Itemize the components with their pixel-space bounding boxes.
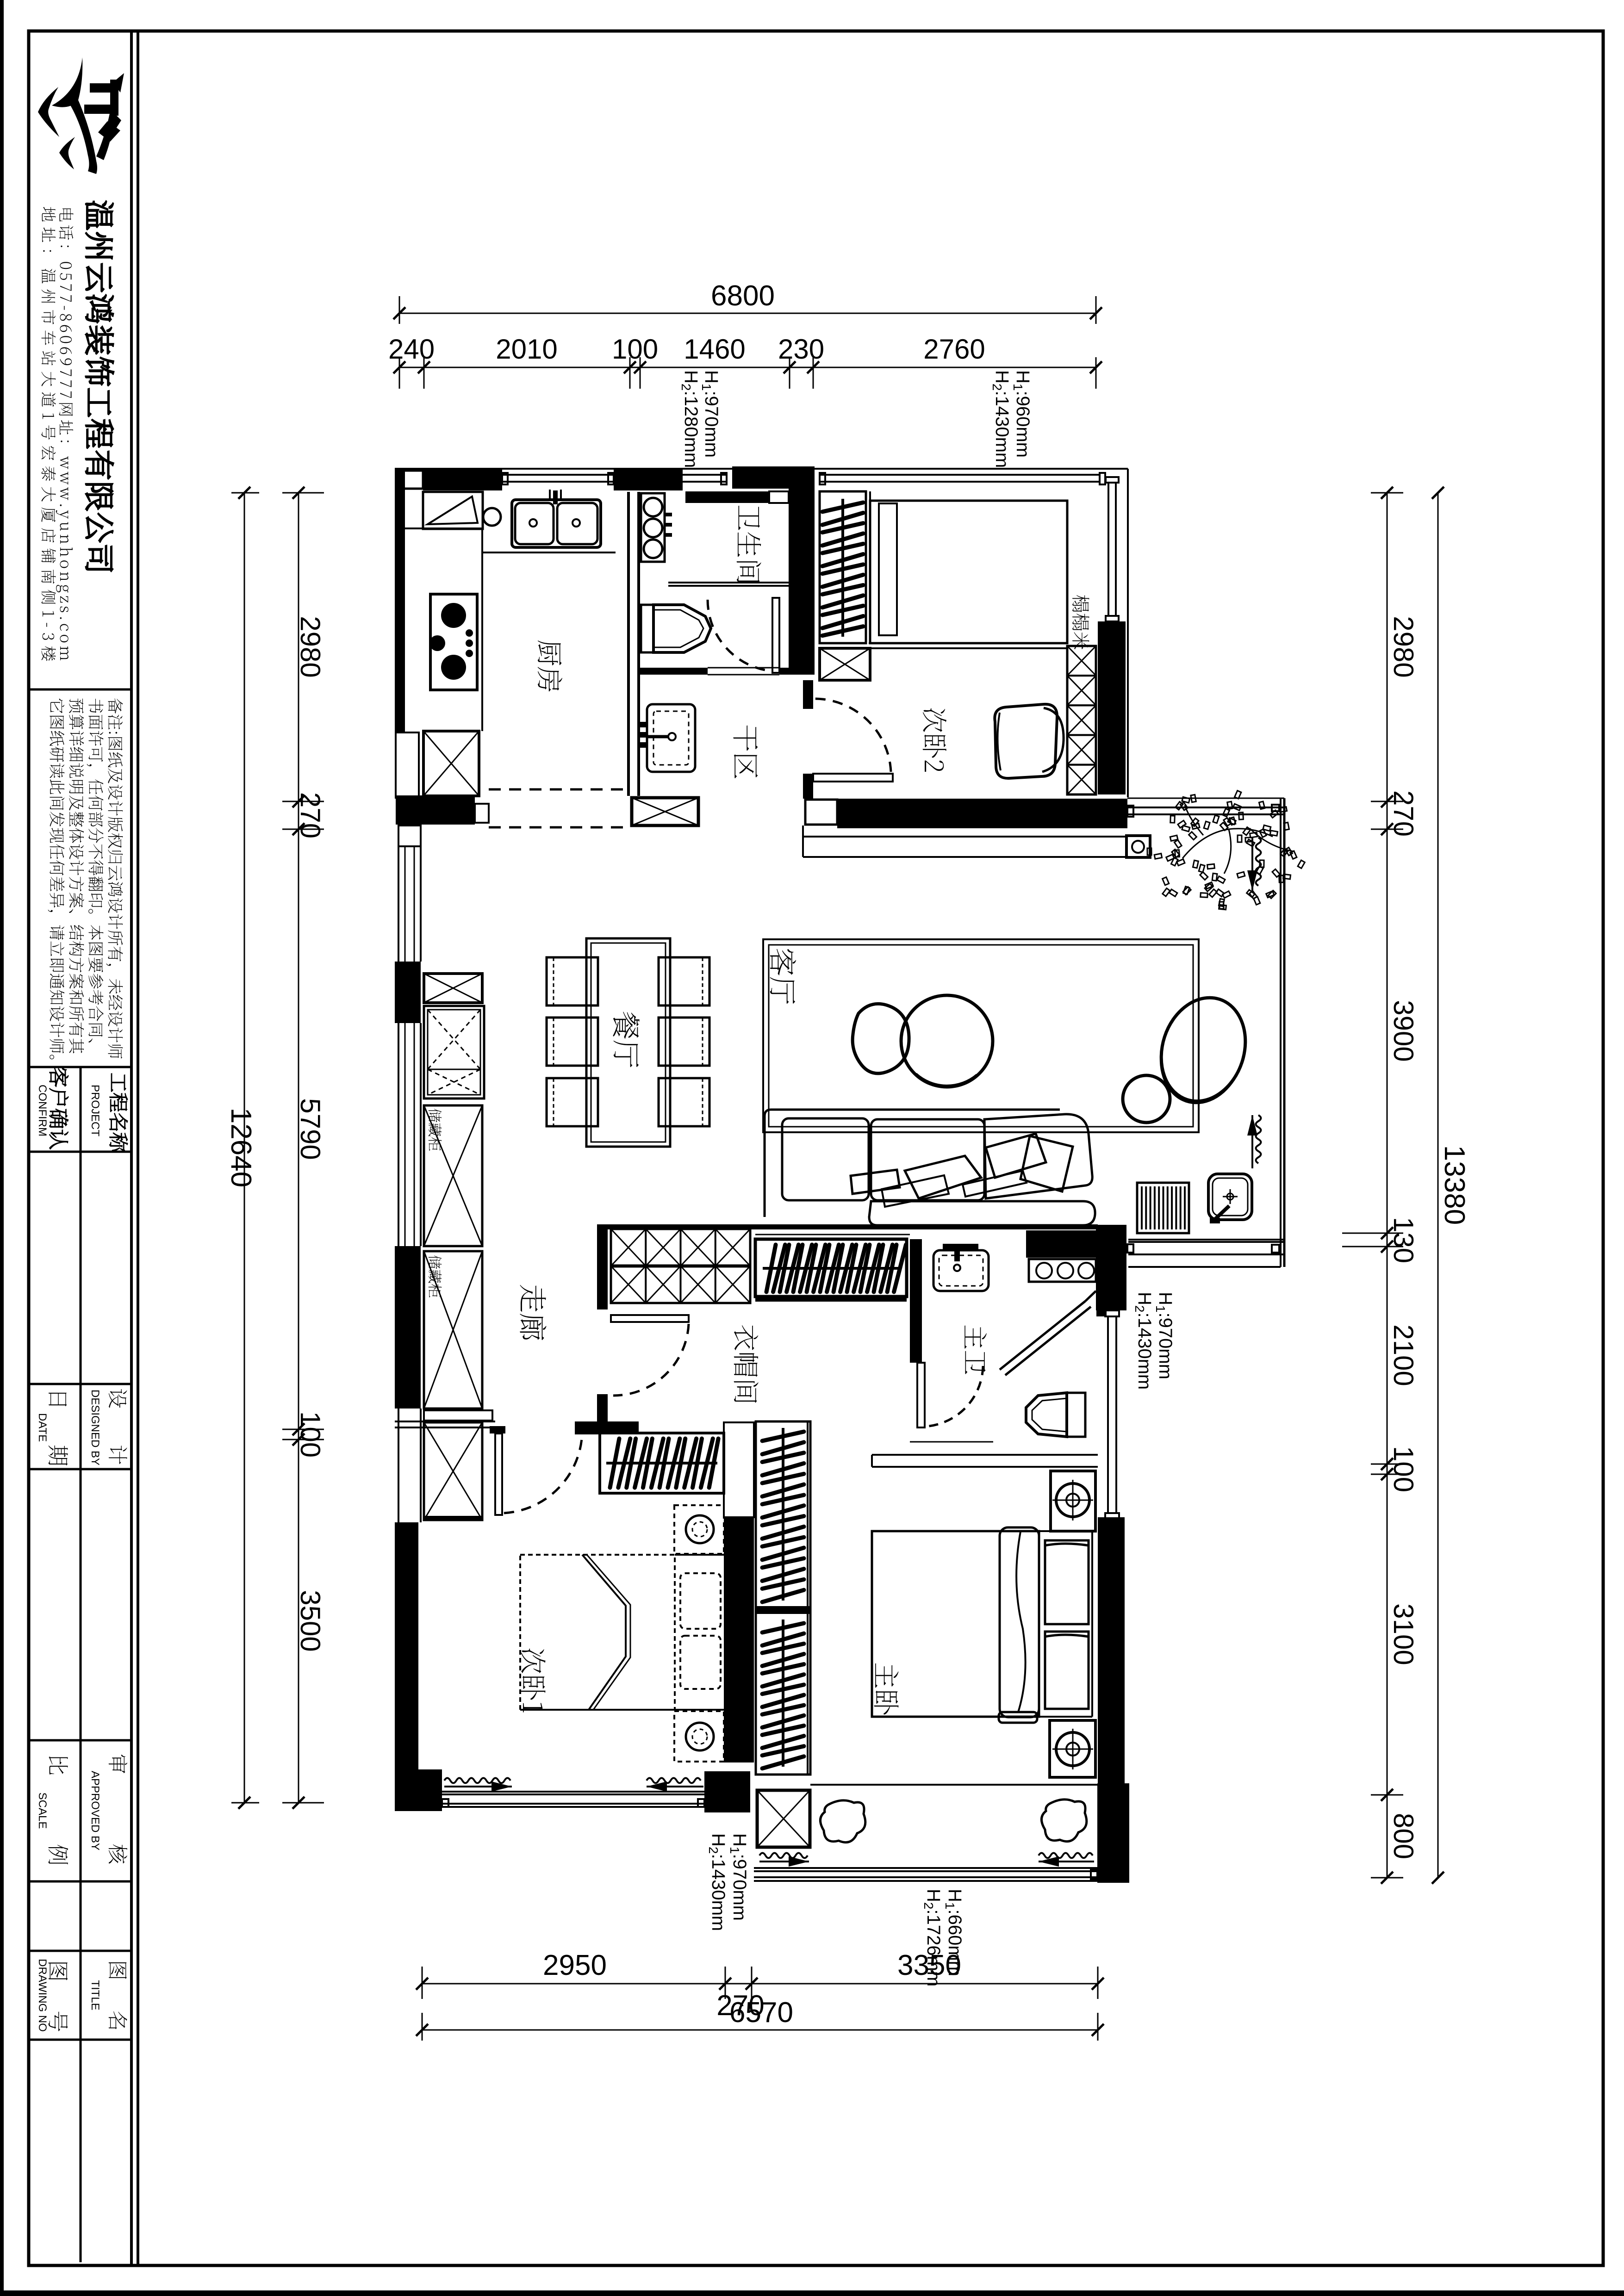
svg-text:CONFIRM: CONFIRM: [36, 1085, 49, 1136]
svg-text:TITLE: TITLE: [89, 1980, 101, 2010]
svg-text:100: 100: [1388, 1446, 1419, 1492]
svg-text:800: 800: [1388, 1813, 1419, 1859]
svg-text:130: 130: [1388, 1217, 1419, 1263]
svg-text:6800: 6800: [711, 280, 775, 312]
svg-text:13380: 13380: [1438, 1145, 1470, 1225]
svg-text:H1:660mm: H1:660mm: [943, 1889, 965, 1976]
svg-text:100: 100: [295, 1411, 326, 1458]
svg-text:270: 270: [1388, 790, 1419, 837]
svg-text:2980: 2980: [1388, 616, 1419, 677]
svg-text:DESIGNED BY: DESIGNED BY: [89, 1390, 101, 1465]
svg-text:APPROVED BY: APPROVED BY: [89, 1771, 101, 1850]
svg-text:230: 230: [778, 334, 824, 365]
svg-text:100: 100: [612, 334, 658, 365]
svg-text:DATE: DATE: [36, 1413, 49, 1442]
svg-text:DRAWING NO: DRAWING NO: [36, 1959, 49, 2032]
svg-text:H1:960mm: H1:960mm: [1011, 370, 1033, 458]
svg-text:PROJECT: PROJECT: [89, 1085, 101, 1136]
svg-text:2950: 2950: [543, 1949, 607, 1981]
svg-text:2760: 2760: [923, 334, 985, 365]
svg-text:240: 240: [388, 334, 435, 365]
svg-text:3900: 3900: [1388, 1000, 1419, 1061]
svg-text:2100: 2100: [1388, 1324, 1419, 1386]
svg-text:SCALE: SCALE: [36, 1793, 49, 1829]
svg-text:3500: 3500: [295, 1590, 326, 1651]
svg-text:12640: 12640: [225, 1108, 257, 1187]
svg-text:H1:970mm: H1:970mm: [699, 370, 722, 458]
svg-text:5790: 5790: [295, 1098, 326, 1160]
svg-text:1460: 1460: [684, 334, 745, 365]
svg-text:2980: 2980: [295, 616, 326, 677]
svg-text:6570: 6570: [729, 1997, 793, 2029]
svg-text:H1:970mm: H1:970mm: [1153, 1292, 1176, 1379]
svg-text:2010: 2010: [496, 334, 557, 365]
svg-text:H1:970mm: H1:970mm: [728, 1833, 750, 1921]
svg-text:270: 270: [295, 792, 326, 838]
svg-text:3100: 3100: [1388, 1603, 1419, 1665]
